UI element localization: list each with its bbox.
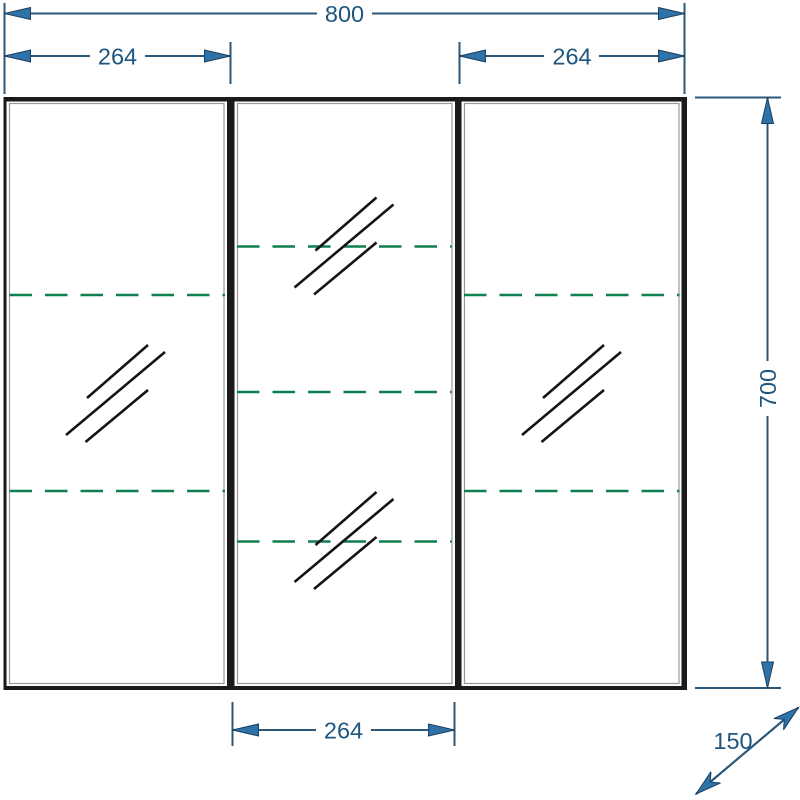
svg-text:264: 264: [552, 43, 591, 69]
svg-text:150: 150: [713, 728, 752, 754]
svg-text:700: 700: [755, 369, 781, 408]
svg-text:264: 264: [324, 717, 363, 743]
svg-text:264: 264: [98, 43, 137, 69]
svg-text:800: 800: [325, 1, 364, 27]
